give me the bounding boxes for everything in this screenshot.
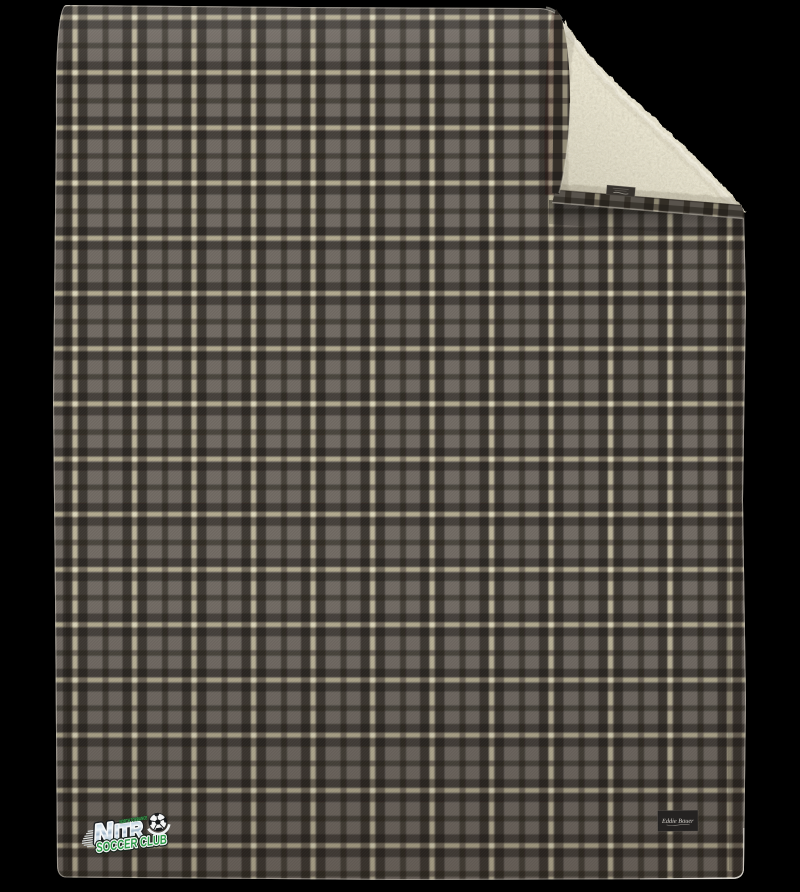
svg-text:Eddie Bauer: Eddie Bauer — [661, 818, 694, 825]
